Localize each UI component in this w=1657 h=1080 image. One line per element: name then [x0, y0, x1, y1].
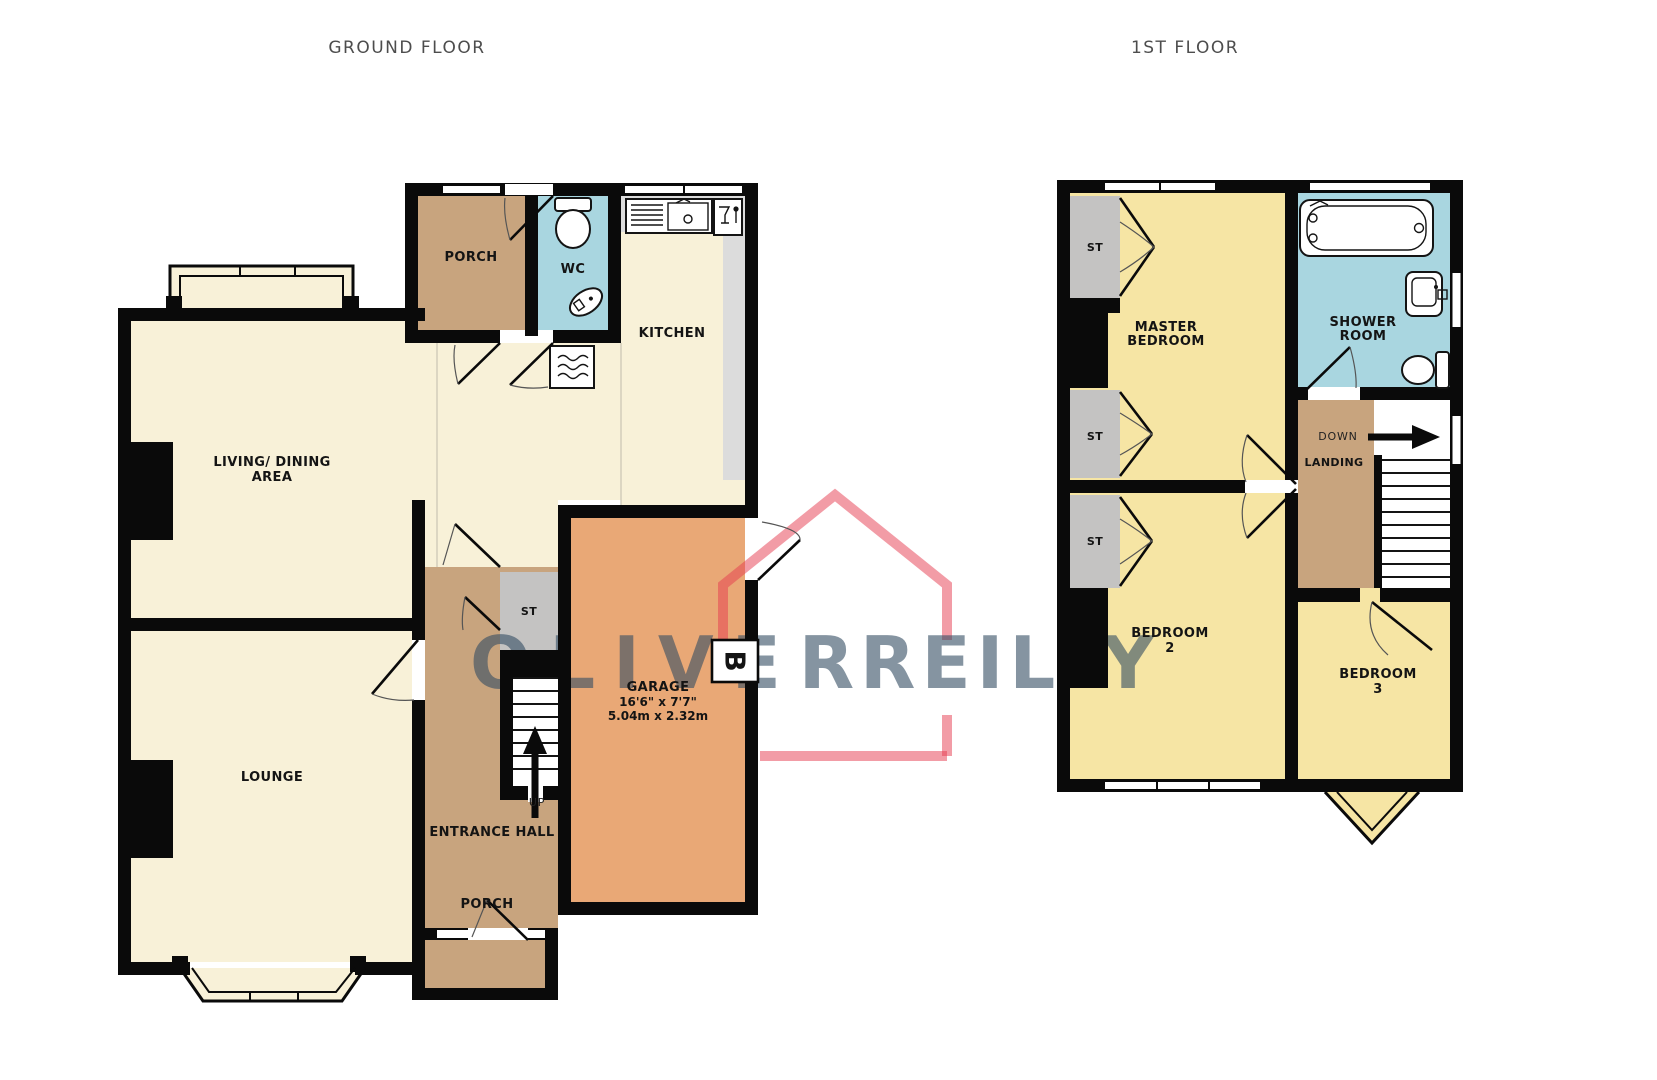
master-bedroom-label-1: MASTER — [1135, 320, 1198, 335]
porch-bottom-room — [425, 940, 545, 988]
bedroom2-label-2: 2 — [1165, 641, 1174, 656]
porch-bottom-label: PORCH — [460, 897, 513, 912]
porch-top-label: PORCH — [444, 250, 497, 265]
bottom-bay-floor — [180, 968, 365, 1001]
dishwasher-icon — [714, 199, 742, 235]
shower-sink-icon — [1406, 272, 1447, 316]
floorplan-page: OLIVER REILLY — [0, 0, 1657, 1080]
bath-icon — [1300, 200, 1433, 256]
watermark-word2: REILLY — [860, 621, 1160, 705]
ff-st3-label: ST — [1087, 535, 1103, 548]
wc-label: WC — [561, 262, 586, 277]
shower-room-label-2: ROOM — [1340, 329, 1387, 344]
boiler-label: B — [719, 650, 752, 671]
kitchen-sink-icon — [626, 199, 712, 233]
boiler-icon: B — [712, 640, 758, 682]
ff-st2-label: ST — [1087, 430, 1103, 443]
landing-room — [1298, 400, 1374, 588]
kitchen-label: KITCHEN — [639, 326, 706, 341]
oven-icon — [550, 346, 594, 388]
porch-door-opening — [505, 184, 553, 195]
landing-label: LANDING — [1305, 456, 1364, 469]
kitchen-counter-right — [723, 232, 745, 480]
ff-st1-label: ST — [1087, 241, 1103, 254]
ff-toilet-icon — [1402, 352, 1449, 388]
floorplan-drawing: OLIVER REILLY — [0, 0, 1657, 1080]
garage-dims-metric: 5.04m x 2.32m — [608, 709, 708, 723]
bed3-bay-floor — [1325, 792, 1419, 843]
up-label: UP — [529, 796, 545, 809]
first-floor-title: 1ST FLOOR — [1131, 38, 1239, 58]
top-bay-floor — [170, 266, 353, 308]
lounge-room — [131, 631, 412, 962]
ground-floor-title: GROUND FLOOR — [328, 38, 485, 58]
shower-room-label-1: SHOWER — [1330, 315, 1397, 330]
bedroom3-label-1: BEDROOM — [1339, 667, 1416, 682]
bedroom2-chimney-breast — [1070, 588, 1108, 688]
entrance-hall-label: ENTRANCE HALL — [429, 825, 554, 840]
living-dining-label-2: AREA — [252, 470, 293, 485]
bedroom3-door-gap — [1360, 588, 1380, 602]
bedroom3-label-2: 3 — [1373, 682, 1382, 697]
down-label: DOWN — [1318, 430, 1357, 443]
lounge-chimney-breast — [131, 760, 173, 858]
bedroom2-label-1: BEDROOM — [1131, 626, 1208, 641]
living-dining-label-1: LIVING/ DINING — [213, 455, 330, 470]
living-chimney-breast — [131, 442, 173, 540]
toilet-icon — [555, 198, 591, 248]
garage-label: GARAGE — [627, 680, 690, 695]
master-chimney-breast — [1070, 313, 1108, 388]
garage-dims-imperial: 16'6" x 7'7" — [619, 695, 697, 709]
gf-st-label: ST — [521, 605, 537, 618]
first-floor-plan — [1070, 193, 1450, 843]
lounge-label: LOUNGE — [241, 770, 303, 785]
master-bedroom-label-2: BEDROOM — [1127, 334, 1204, 349]
